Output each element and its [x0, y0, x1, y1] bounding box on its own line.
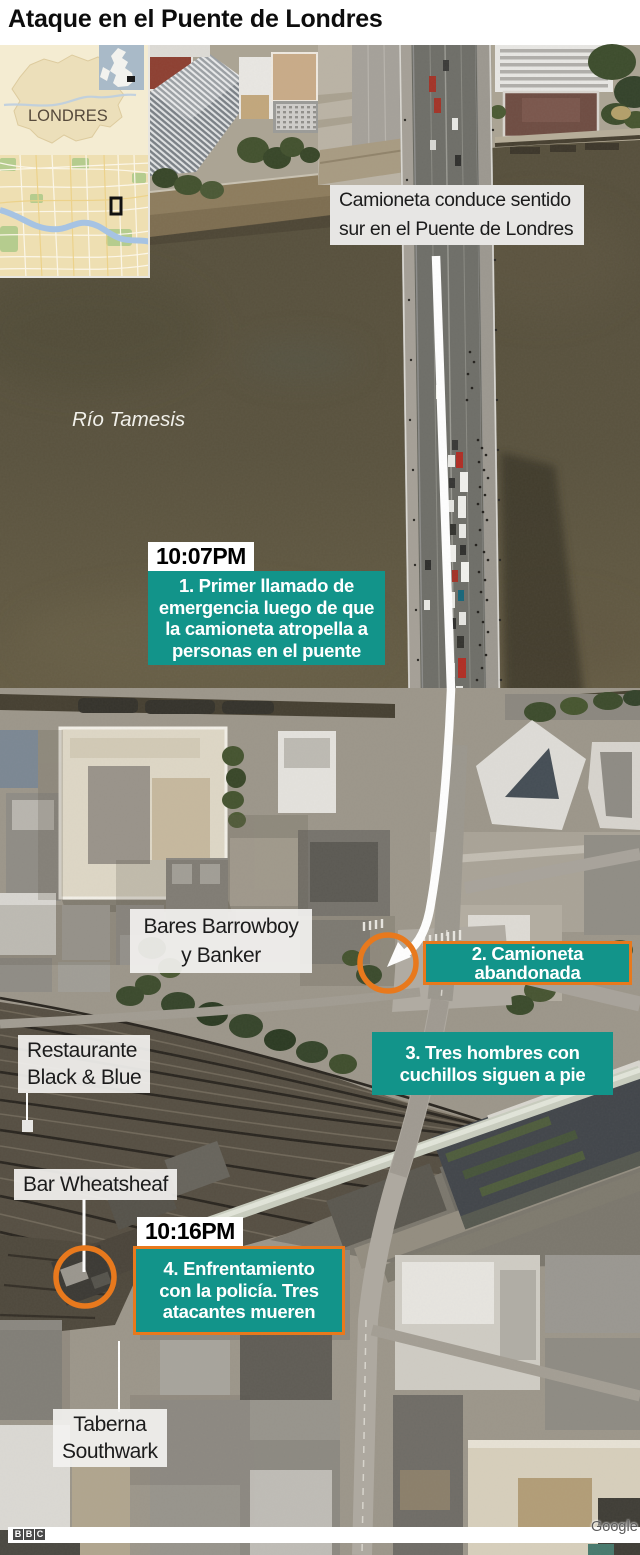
svg-text:LONDRES: LONDRES — [28, 107, 108, 125]
